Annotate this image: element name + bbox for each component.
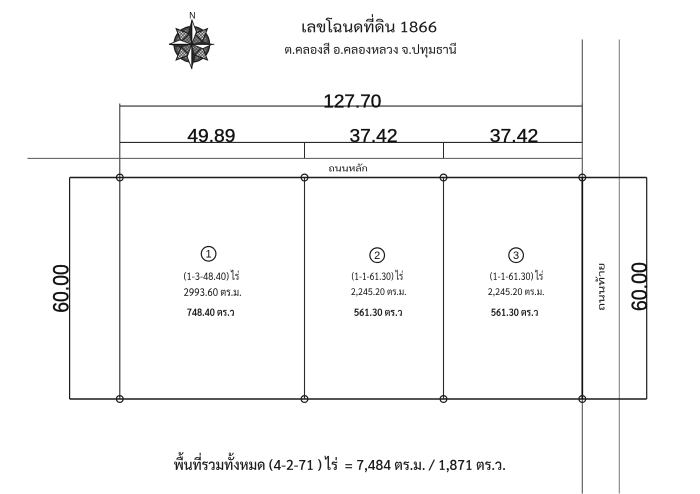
svg-text:60.00: 60.00	[627, 262, 652, 311]
svg-text:37.42: 37.42	[350, 126, 398, 146]
svg-text:2: 2	[374, 250, 380, 262]
svg-text:N: N	[189, 10, 196, 20]
svg-text:127.70: 127.70	[323, 91, 381, 111]
svg-text:1: 1	[206, 249, 212, 261]
svg-text:49.89: 49.89	[187, 126, 235, 146]
svg-text:3: 3	[513, 250, 519, 262]
svg-text:60.00: 60.00	[49, 264, 74, 313]
svg-text:37.42: 37.42	[490, 126, 539, 146]
